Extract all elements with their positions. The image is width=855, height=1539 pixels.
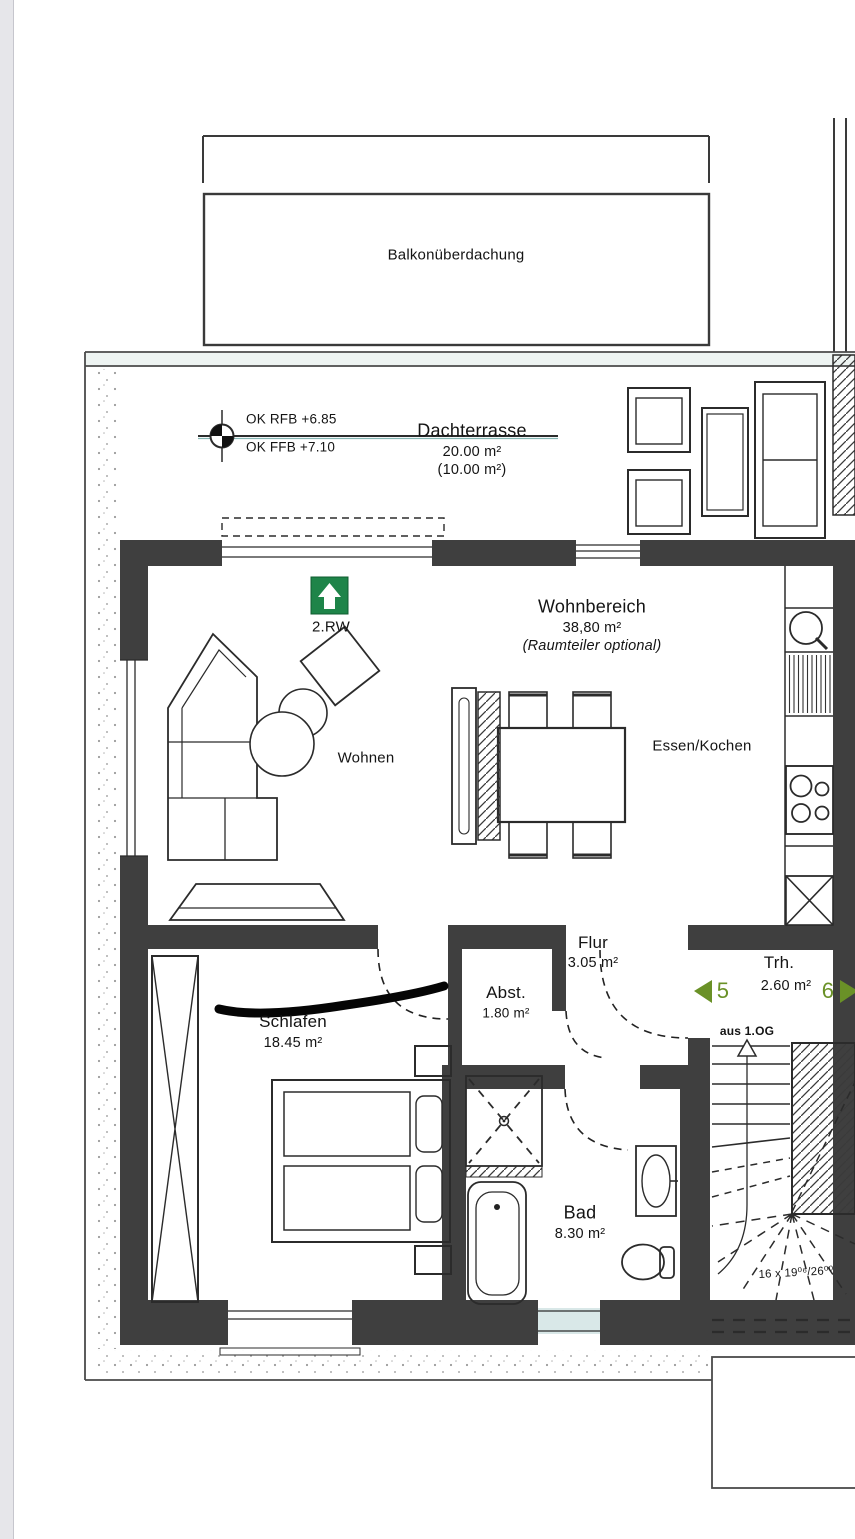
room-area-wohnbereich: 38,80 m²	[563, 620, 622, 636]
neighbor-wall-lines	[834, 118, 846, 352]
room-area-bad: 8.30 m²	[555, 1226, 606, 1242]
terrace-door-glazing	[222, 547, 432, 557]
room-label-bad: Bad	[564, 1203, 597, 1224]
room-area-schlafen: 18.45 m²	[264, 1035, 323, 1051]
room-area2-dachterrasse: (10.00 m²)	[438, 462, 507, 478]
floorplan-page: Balkonüberdachung OK RFB +6.85 OK FFB +7…	[0, 0, 855, 1539]
dining-table	[498, 728, 625, 822]
dining-chair	[573, 822, 611, 858]
sideboard	[170, 884, 344, 920]
storage-door-swing	[566, 1011, 606, 1058]
room-note-wohnbereich: (Raumteiler optional)	[523, 638, 662, 654]
dining-chair	[573, 692, 611, 728]
stair-shaft	[792, 1043, 855, 1214]
sofa-group	[168, 627, 379, 920]
pillow	[416, 1166, 442, 1222]
level-line-2: OK FFB +7.10	[246, 440, 335, 455]
room-label-flur: Flur	[578, 933, 608, 953]
hatched-wall-column	[833, 355, 855, 515]
room-divider	[452, 688, 500, 844]
side-table-square	[301, 627, 380, 706]
arrow-left-icon	[694, 980, 712, 1003]
bed-frame	[272, 1080, 450, 1242]
washbasin	[636, 1146, 678, 1216]
mattress	[284, 1092, 410, 1156]
floorplan-drawing	[0, 0, 855, 1539]
wardrobe	[152, 956, 198, 1302]
room-area-abst: 1.80 m²	[482, 1006, 529, 1021]
terrace-armchair	[628, 388, 690, 452]
room-area-dachterrasse: 20.00 m²	[443, 444, 502, 460]
room-label-dachterrasse: Dachterrasse	[417, 421, 526, 442]
kitchen-drainer	[787, 655, 831, 713]
dining-set	[452, 688, 625, 858]
terrace-door-threshold	[222, 518, 444, 536]
balcony-roof-outline	[203, 136, 709, 345]
room-area-trh: 2.60 m²	[761, 978, 812, 994]
zone-label-essen-kochen: Essen/Kochen	[652, 738, 751, 755]
door-swings	[378, 949, 688, 1150]
mattress	[284, 1166, 410, 1230]
room-label-schlafen: Schlafen	[259, 1012, 327, 1032]
stair-direction-arrow	[718, 1040, 756, 1274]
pillow	[416, 1096, 442, 1152]
dining-chair	[509, 822, 547, 858]
shower	[466, 1076, 542, 1177]
kitchen-appliance-box	[786, 876, 833, 925]
dining-chair	[509, 692, 547, 728]
stair-from-label: aus 1.OG	[720, 1024, 774, 1038]
bathtub	[468, 1182, 526, 1304]
room-label-trh: Trh.	[764, 953, 794, 973]
room-area-flur: 3.05 m²	[568, 955, 619, 971]
terrace-table	[702, 408, 748, 516]
bedroom-window	[228, 1311, 352, 1319]
room-label-wohnbereich: Wohnbereich	[538, 597, 646, 618]
bath-door-swing	[565, 1089, 628, 1150]
terrace-sofa	[755, 382, 825, 538]
coffee-table-round	[250, 712, 314, 776]
kitchen-sink	[790, 612, 827, 649]
door-number-5: 5	[717, 978, 729, 1004]
living-window	[120, 660, 148, 856]
escape-route-sign-icon	[311, 577, 348, 614]
room-label-abst: Abst.	[486, 983, 526, 1003]
marker-line	[219, 986, 444, 1013]
toilet	[622, 1245, 674, 1280]
escape-sign-label: 2.RW	[312, 619, 350, 636]
kitchen-stove	[786, 766, 833, 834]
interior-walls	[148, 925, 855, 1300]
balcony-roof-label: Balkonüberdachung	[388, 247, 525, 264]
door-number-6: 6	[822, 978, 834, 1004]
bathroom-fixtures	[466, 1076, 678, 1304]
terrace-armchair	[628, 470, 690, 534]
zone-label-wohnen: Wohnen	[338, 750, 395, 767]
kitchen-unit	[785, 566, 833, 925]
level-line-1: OK RFB +6.85	[246, 412, 337, 427]
